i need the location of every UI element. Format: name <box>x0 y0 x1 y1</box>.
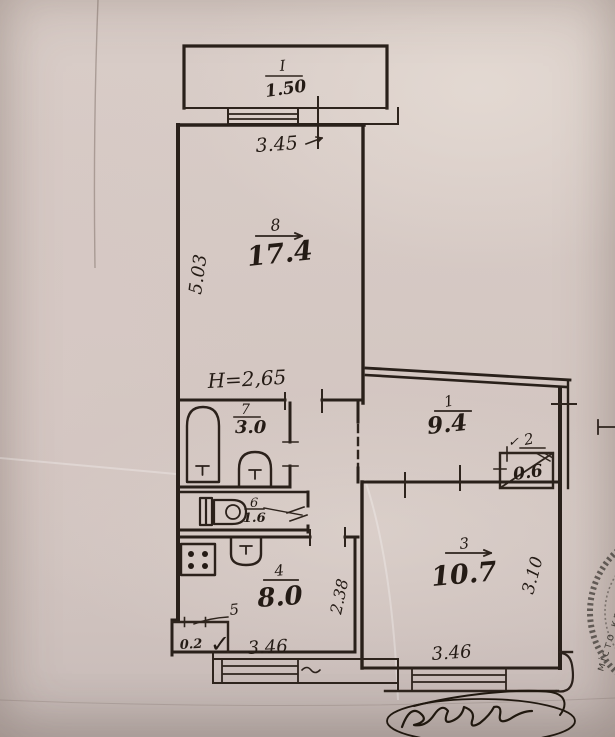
room3-label: 3 10.7 3.10 3.46 <box>430 534 548 665</box>
hall-label: 1 9.4 <box>426 392 471 440</box>
bath-number: 7 <box>241 402 250 418</box>
pantry-label: 5 0.2 ✓ <box>179 600 239 658</box>
pantry-number: 5 <box>229 600 240 619</box>
hall-area: 9.4 <box>426 409 469 440</box>
living-area: 17.4 <box>245 235 314 273</box>
floorplan-photo: I 1.50 3.45 5.03 8 17.4 H=2,65 <box>0 0 615 737</box>
balcony-number: I <box>278 56 288 75</box>
living-room-labels: 3.45 5.03 8 17.4 H=2,65 <box>185 132 322 393</box>
hall-walls <box>366 368 615 668</box>
dim-kitchen-width: 3.46 <box>247 636 288 659</box>
kitchen-walls <box>172 400 358 655</box>
kitchen-label: 4 8.0 2.38 3.46 <box>247 561 352 659</box>
stove <box>181 544 215 575</box>
dim-kitchen-divider: 2.38 <box>326 577 352 617</box>
dim-room3-depth: 3.10 <box>519 554 548 596</box>
balcony-area: 1.50 <box>264 76 308 102</box>
bath-area: 3.0 <box>235 417 267 438</box>
kitchen-area: 8.0 <box>255 581 303 614</box>
living-number: 8 <box>269 215 281 235</box>
toilet <box>200 498 246 525</box>
bathtub <box>187 407 219 482</box>
balcony-label: I 1.50 <box>264 56 308 102</box>
kitchen-sink <box>231 537 261 565</box>
closet-number: 2 <box>522 430 536 450</box>
closet-check: ✓ <box>508 435 519 450</box>
signature <box>387 691 575 737</box>
pantry-area: 0.2 <box>179 637 202 653</box>
height-note: H=2,65 <box>206 365 287 393</box>
wc-area: 1.6 <box>243 511 266 526</box>
dim-living-width: 3.45 <box>255 132 299 157</box>
dim-living-depth: 5.03 <box>185 253 211 296</box>
paper-creases <box>0 0 615 706</box>
room3-area: 10.7 <box>430 556 498 593</box>
closet-label: ✓ 2 0.6 <box>508 430 545 485</box>
room3-number: 3 <box>459 534 470 553</box>
bathroom-label: 7 3.0 <box>234 402 267 438</box>
floorplan-drawing: I 1.50 3.45 5.03 8 17.4 H=2,65 <box>0 0 615 737</box>
dim-room3-width: 3.46 <box>431 641 472 665</box>
kitchen-number: 4 <box>273 561 285 580</box>
hall-number: 1 <box>443 392 456 411</box>
official-stamp: місто кри <box>590 530 615 694</box>
washbasin <box>239 452 271 487</box>
